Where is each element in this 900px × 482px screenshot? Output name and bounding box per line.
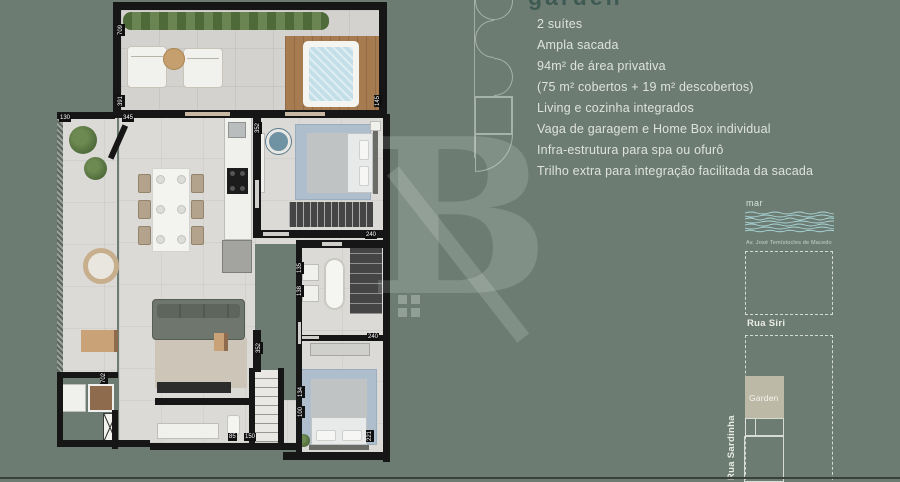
spa-water: [309, 47, 353, 101]
cooktop: [227, 168, 248, 194]
hedge-plants: [123, 12, 329, 30]
tv-console: [157, 382, 231, 393]
dim-label: 345: [122, 114, 134, 122]
avenue-label: Av. José Temístocles de Macedo: [746, 240, 832, 246]
floor-plan: 709 391 145 130 345 352 240 135 138 240 …: [57, 2, 391, 462]
dining-chair: [138, 226, 151, 245]
dining-chair: [191, 174, 204, 193]
suite2-headboard: [309, 445, 369, 450]
dim-label: 130: [59, 114, 71, 122]
brand-squares-icon: [398, 295, 420, 317]
garden-building-marker: Garden: [745, 376, 784, 418]
dim-label: 240: [365, 231, 377, 239]
wood-bench: [81, 330, 118, 352]
suite2-dresser: [310, 343, 370, 356]
lot-outline: [745, 418, 784, 436]
lot-outline: [744, 436, 784, 482]
feature-item: 2 suítes: [537, 14, 867, 35]
feature-item: (75 m² cobertos + 19 m² descobertos): [537, 77, 867, 98]
dim-label: 145: [374, 95, 382, 107]
dim-label: 709: [117, 24, 125, 36]
spa-hot-tub: [303, 41, 359, 107]
garden-building-label: Garden: [749, 393, 779, 403]
slide: 709 391 145 130 345 352 240 135 138 240 …: [0, 0, 900, 482]
kitchen-cabinet: [222, 240, 252, 273]
lounge-chair: [127, 46, 167, 88]
entry-wc-sink: [62, 384, 86, 412]
dim-label: 240: [367, 333, 379, 341]
feature-item: Living e cozinha integrados: [537, 98, 867, 119]
dim-label: 85: [228, 433, 237, 441]
ofuro-tub: [266, 129, 291, 154]
dim-label: 150: [244, 433, 256, 441]
dim-label: 138: [296, 285, 304, 297]
dim-label: 391: [117, 95, 125, 107]
balcony-plant: [69, 126, 97, 154]
living-rug: [155, 338, 247, 388]
bathtub: [324, 258, 345, 310]
balcony-plant: [84, 157, 107, 180]
dining-chair: [191, 226, 204, 245]
kitchen-sink: [228, 122, 246, 138]
feature-item: Vaga de garagem e Home Box individual: [537, 119, 867, 140]
street-label-sardinha: Rua Sardinha: [726, 414, 737, 480]
suite2-bed: [311, 379, 367, 445]
hanging-egg-chair: [83, 248, 119, 284]
dining-table: [152, 168, 190, 252]
suite1-bed: [307, 133, 373, 193]
feature-item: Trilho extra para integração facilitada …: [537, 161, 867, 182]
sea-label: mar: [746, 198, 763, 208]
dim-label: 134: [297, 386, 305, 398]
location-map: mar Av. José Temístocles de Macedo Rua S…: [726, 198, 838, 482]
hall-closet: [255, 370, 278, 442]
bath1-counter: [157, 423, 219, 439]
suite1-wardrobe: [289, 202, 373, 227]
dim-label: 352: [254, 122, 262, 134]
dim-label: 352: [255, 342, 263, 354]
feature-list: 2 suítes Ampla sacada 94m² de área priva…: [537, 14, 867, 182]
dining-chair: [138, 174, 151, 193]
dim-label: 135: [296, 262, 304, 274]
feature-item: Infra-estrutura para spa ou ofurô: [537, 140, 867, 161]
entry-shower: [88, 384, 114, 412]
dim-label: 221: [366, 430, 374, 442]
dim-label: 100: [297, 406, 305, 418]
street-label-siri: Rua Siri: [747, 318, 785, 329]
page-title: garden: [528, 0, 623, 11]
slide-bottom-border: [0, 477, 900, 479]
round-table: [163, 48, 185, 70]
bath2-sink: [302, 264, 319, 281]
dim-label: 702: [100, 372, 108, 384]
dining-chair: [191, 200, 204, 219]
dining-chair: [138, 200, 151, 219]
feature-item: Ampla sacada: [537, 35, 867, 56]
feature-item: 94m² de área privativa: [537, 56, 867, 77]
lounge-chair: [183, 48, 223, 88]
water-waves-icon: [745, 211, 834, 233]
side-table: [214, 333, 228, 351]
sofa: [152, 299, 245, 340]
bath2-sink: [302, 285, 319, 302]
brand-letter-watermark: B: [368, 118, 550, 318]
city-block: [745, 251, 833, 315]
